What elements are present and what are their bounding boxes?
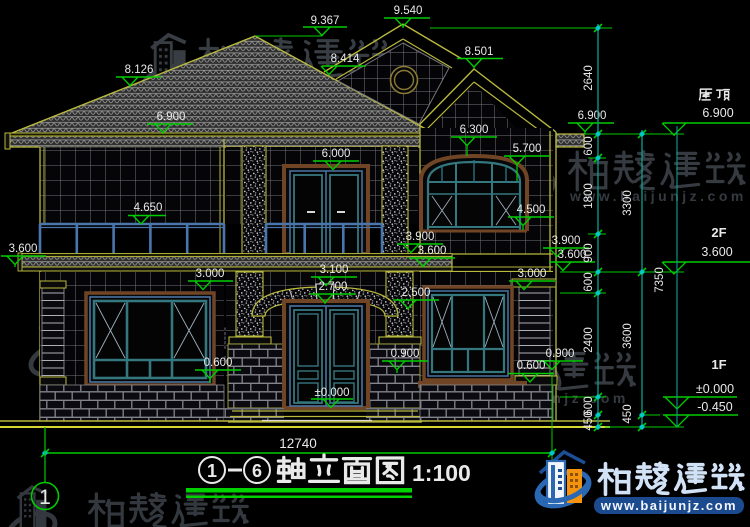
svg-text:450: 450 — [583, 411, 595, 430]
svg-text:6.900: 6.900 — [702, 106, 733, 120]
svg-text:6.900: 6.900 — [578, 110, 607, 122]
svg-text:8.501: 8.501 — [465, 46, 494, 58]
svg-text:-0.450: -0.450 — [697, 400, 732, 414]
svg-text:±0.000: ±0.000 — [314, 387, 349, 399]
svg-text:2400: 2400 — [583, 327, 595, 353]
svg-text:6: 6 — [252, 461, 262, 481]
svg-text:3.600: 3.600 — [701, 245, 732, 259]
svg-text:±0.000: ±0.000 — [696, 382, 734, 396]
svg-text:6.900: 6.900 — [157, 111, 186, 123]
svg-text:2640: 2640 — [583, 65, 595, 91]
svg-text:www.baijunjz.com: www.baijunjz.com — [600, 498, 737, 513]
svg-text:3600: 3600 — [622, 323, 634, 349]
svg-text:1: 1 — [207, 461, 217, 481]
svg-text:3300: 3300 — [622, 190, 634, 216]
svg-text:7350: 7350 — [654, 267, 666, 293]
svg-text:900: 900 — [583, 243, 595, 262]
svg-text:9.540: 9.540 — [394, 5, 423, 17]
svg-text:1: 1 — [39, 486, 51, 509]
svg-text:450: 450 — [622, 404, 634, 423]
svg-text:2.700: 2.700 — [319, 281, 348, 293]
svg-text:2F: 2F — [711, 225, 726, 240]
svg-text:8.414: 8.414 — [331, 53, 360, 65]
svg-text:3.000: 3.000 — [518, 268, 547, 280]
svg-text:0.900: 0.900 — [546, 348, 575, 360]
svg-text:6.300: 6.300 — [460, 124, 489, 136]
svg-text:9.367: 9.367 — [311, 15, 340, 27]
svg-text:3.900: 3.900 — [406, 231, 435, 243]
svg-text:0.900: 0.900 — [391, 348, 420, 360]
svg-text:5.700: 5.700 — [513, 143, 542, 155]
svg-text:8.126: 8.126 — [125, 64, 154, 76]
svg-text:1F: 1F — [711, 357, 726, 372]
svg-text:0.600: 0.600 — [204, 357, 233, 369]
svg-text:1:100: 1:100 — [412, 460, 471, 486]
svg-text:0.600: 0.600 — [517, 360, 546, 372]
svg-text:www.baijunjz.com: www.baijunjz.com — [569, 188, 747, 204]
svg-text:4.500: 4.500 — [517, 204, 546, 216]
svg-text:3.600: 3.600 — [418, 245, 447, 257]
svg-text:600: 600 — [583, 272, 595, 291]
svg-text:4.650: 4.650 — [134, 202, 163, 214]
svg-text:3.100: 3.100 — [320, 264, 349, 276]
svg-text:3.900: 3.900 — [552, 235, 581, 247]
svg-text:3.000: 3.000 — [196, 268, 225, 280]
svg-text:6.000: 6.000 — [322, 148, 351, 160]
svg-text:12740: 12740 — [279, 436, 317, 451]
svg-text:1800: 1800 — [583, 183, 595, 209]
svg-text:3.600: 3.600 — [9, 243, 38, 255]
svg-text:600: 600 — [583, 136, 595, 155]
svg-text:2.500: 2.500 — [402, 287, 431, 299]
